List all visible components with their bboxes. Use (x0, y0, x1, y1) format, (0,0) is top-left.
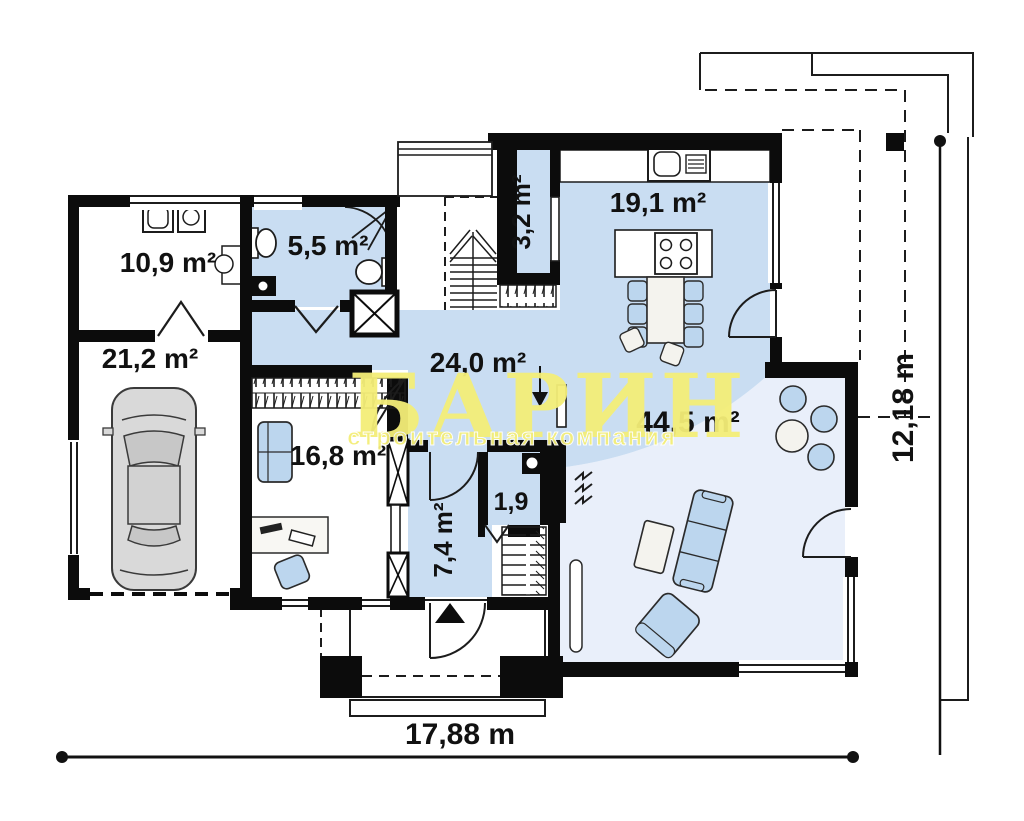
cooker-icon (648, 147, 710, 181)
shelf-closet-vestibule (502, 527, 546, 595)
door-leaf-pantry (551, 197, 559, 261)
watermark: БАРИН строительная компания (347, 354, 748, 458)
kitchen-counter (560, 147, 770, 182)
window-living-bottom (739, 660, 845, 679)
window-cabinet-bottom-2 (362, 595, 390, 612)
car-icon (103, 388, 205, 590)
label-garage: 21,2 m² (102, 343, 199, 374)
window-stair-bay (398, 142, 492, 196)
window-garage-left (66, 442, 81, 554)
desk-icon (250, 517, 328, 553)
label-wc: 1,9 (494, 488, 529, 516)
label-vestibule: 7,4 m² (428, 502, 458, 577)
label-bathroom: 5,5 m² (288, 230, 369, 261)
boiler-icon (250, 276, 276, 296)
window-bath-top (254, 191, 302, 210)
terrace-column (886, 133, 904, 151)
porch-step (350, 700, 545, 716)
cooktop-icon (655, 233, 697, 274)
window-utility-top (130, 191, 240, 210)
radiator-icon (570, 560, 582, 652)
label-pantry: 3,2 m² (506, 174, 536, 249)
watermark-subtitle: строительная компания (347, 424, 677, 451)
label-utility: 10,9 m² (120, 247, 217, 278)
cabinet-sofa-icon (258, 422, 292, 482)
window-cabinet-bottom-1 (282, 595, 308, 612)
bath-sink-icon (250, 228, 276, 258)
coat-closet-hall (500, 285, 556, 307)
window-living-right (843, 577, 859, 662)
kitchen-island (615, 230, 712, 277)
window-kitchen-right (768, 183, 784, 283)
label-kitchen: 19,1 m² (610, 187, 707, 218)
dimension-height-label: 12,18 m (887, 353, 920, 463)
dimension-width-label: 17,88 m (405, 718, 515, 751)
floor-plan-drawing: 10,9 m² 5,5 m² 21,2 m² 16,8 m² 24,0 m² 3… (0, 0, 1024, 821)
vent-shaft (352, 292, 397, 335)
floor-plan-page: 10,9 m² 5,5 m² 21,2 m² 16,8 m² 24,0 m² 3… (0, 0, 1024, 821)
